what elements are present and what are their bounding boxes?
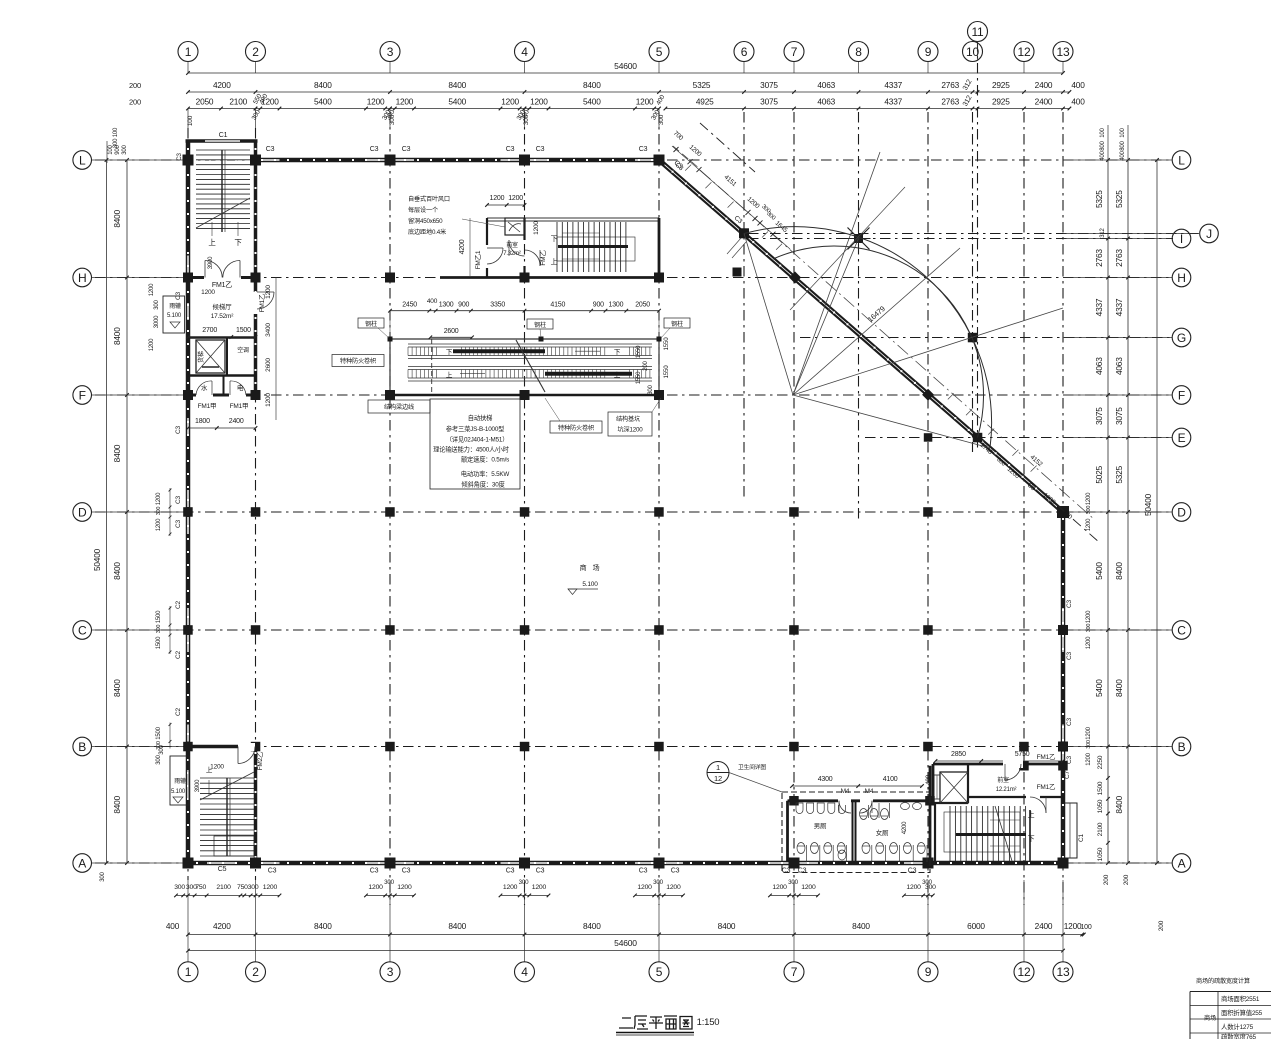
svg-text:5025: 5025 bbox=[1094, 465, 1104, 483]
svg-text:1:150: 1:150 bbox=[697, 1017, 720, 1028]
svg-text:50400: 50400 bbox=[92, 548, 102, 571]
svg-text:商场的疏散宽度计算: 商场的疏散宽度计算 bbox=[1196, 977, 1250, 985]
svg-text:电动功率：5.5KW: 电动功率：5.5KW bbox=[461, 469, 510, 478]
svg-text:1200: 1200 bbox=[637, 884, 652, 891]
svg-text:1800: 1800 bbox=[195, 418, 210, 425]
svg-text:C3: C3 bbox=[370, 868, 379, 875]
svg-text:5750: 5750 bbox=[1015, 751, 1030, 758]
svg-text:1300: 1300 bbox=[439, 302, 454, 309]
svg-text:C3: C3 bbox=[506, 146, 515, 153]
svg-text:1200: 1200 bbox=[367, 97, 385, 107]
svg-text:坑深1200: 坑深1200 bbox=[618, 426, 644, 434]
svg-text:6000: 6000 bbox=[967, 921, 985, 931]
svg-text:C3: C3 bbox=[639, 868, 648, 875]
svg-text:4337: 4337 bbox=[1094, 298, 1104, 316]
svg-text:C3: C3 bbox=[402, 868, 411, 875]
svg-text:C: C bbox=[78, 623, 87, 637]
svg-text:1550: 1550 bbox=[636, 371, 642, 384]
svg-text:C3: C3 bbox=[536, 868, 545, 875]
svg-text:A: A bbox=[78, 856, 86, 870]
svg-text:2850: 2850 bbox=[951, 751, 966, 758]
svg-text:300: 300 bbox=[523, 114, 530, 125]
svg-text:1200: 1200 bbox=[261, 97, 279, 107]
svg-text:200: 200 bbox=[129, 98, 141, 107]
svg-text:雨辘: 雨辘 bbox=[169, 302, 181, 310]
svg-text:12.21m²: 12.21m² bbox=[996, 787, 1017, 793]
svg-text:面积折算值255: 面积折算值255 bbox=[1221, 1008, 1263, 1017]
svg-text:8400: 8400 bbox=[112, 444, 122, 462]
svg-text:800: 800 bbox=[1120, 140, 1126, 150]
svg-text:FM1甲: FM1甲 bbox=[198, 402, 217, 410]
svg-text:2250: 2250 bbox=[1097, 755, 1104, 769]
svg-text:4925: 4925 bbox=[696, 97, 714, 107]
svg-text:12: 12 bbox=[1018, 45, 1031, 59]
svg-text:300: 300 bbox=[788, 879, 798, 886]
svg-text:F: F bbox=[1178, 388, 1185, 402]
svg-text:1550: 1550 bbox=[663, 365, 670, 379]
svg-text:3075: 3075 bbox=[760, 97, 778, 107]
svg-text:300: 300 bbox=[384, 879, 394, 886]
svg-text:下: 下 bbox=[551, 235, 558, 243]
svg-text:1200: 1200 bbox=[210, 764, 224, 771]
svg-text:300: 300 bbox=[389, 114, 396, 125]
svg-text:300: 300 bbox=[100, 871, 106, 881]
svg-text:1200: 1200 bbox=[201, 289, 215, 296]
svg-text:FM1乙: FM1乙 bbox=[212, 281, 232, 289]
svg-text:5400: 5400 bbox=[583, 97, 601, 107]
svg-text:1200: 1200 bbox=[490, 195, 505, 202]
svg-text:H: H bbox=[1177, 271, 1185, 285]
svg-text:5: 5 bbox=[656, 965, 663, 979]
svg-text:2050: 2050 bbox=[635, 302, 650, 309]
svg-text:1500: 1500 bbox=[236, 327, 251, 334]
svg-text:200: 200 bbox=[129, 81, 141, 90]
svg-text:300: 300 bbox=[922, 879, 932, 886]
svg-text:特种防火卷帜: 特种防火卷帜 bbox=[558, 424, 594, 432]
svg-text:C3: C3 bbox=[1066, 717, 1073, 725]
svg-text:2700: 2700 bbox=[202, 327, 217, 334]
svg-text:8400: 8400 bbox=[112, 679, 122, 697]
svg-text:5.100: 5.100 bbox=[582, 581, 598, 588]
svg-text:上: 上 bbox=[551, 257, 558, 266]
svg-text:1: 1 bbox=[185, 45, 192, 59]
svg-text:C2: C2 bbox=[175, 650, 182, 658]
svg-text:2: 2 bbox=[252, 45, 259, 59]
svg-text:13: 13 bbox=[1057, 45, 1070, 59]
svg-text:C5: C5 bbox=[218, 866, 227, 873]
svg-text:2100: 2100 bbox=[229, 97, 247, 107]
svg-text:8400: 8400 bbox=[1114, 679, 1124, 697]
svg-text:额定速度：0.5m/s: 额定速度：0.5m/s bbox=[461, 455, 509, 464]
svg-text:1200: 1200 bbox=[156, 492, 162, 505]
svg-text:C3: C3 bbox=[1066, 651, 1073, 659]
svg-text:8400: 8400 bbox=[583, 80, 601, 90]
svg-text:300: 300 bbox=[154, 299, 160, 309]
svg-text:2600: 2600 bbox=[265, 358, 272, 372]
svg-text:2400: 2400 bbox=[229, 418, 244, 425]
svg-text:商场: 商场 bbox=[1204, 1014, 1216, 1022]
svg-text:2400: 2400 bbox=[1035, 921, 1053, 931]
svg-text:FM乙1: FM乙1 bbox=[474, 250, 482, 269]
svg-text:3: 3 bbox=[387, 45, 394, 59]
svg-text:C3: C3 bbox=[639, 146, 648, 153]
svg-text:1200: 1200 bbox=[508, 195, 523, 202]
svg-text:300: 300 bbox=[658, 114, 665, 125]
svg-text:钢柱: 钢柱 bbox=[365, 320, 377, 328]
svg-text:300: 300 bbox=[156, 754, 162, 764]
svg-text:1200: 1200 bbox=[772, 884, 787, 891]
svg-text:54600: 54600 bbox=[614, 61, 637, 71]
svg-text:1200: 1200 bbox=[801, 884, 816, 891]
svg-text:12: 12 bbox=[714, 774, 722, 783]
svg-text:下: 下 bbox=[446, 348, 453, 356]
svg-text:M4: M4 bbox=[841, 788, 850, 795]
svg-text:2925: 2925 bbox=[992, 80, 1010, 90]
svg-text:2400: 2400 bbox=[1035, 80, 1053, 90]
svg-text:17.52m²: 17.52m² bbox=[211, 313, 234, 320]
svg-text:1200: 1200 bbox=[666, 884, 681, 891]
svg-text:13: 13 bbox=[1057, 965, 1070, 979]
svg-text:750: 750 bbox=[195, 884, 206, 891]
svg-text:1200: 1200 bbox=[532, 884, 547, 891]
svg-text:人数计1275: 人数计1275 bbox=[1221, 1022, 1254, 1031]
svg-text:C1: C1 bbox=[1078, 833, 1085, 841]
svg-text:C3: C3 bbox=[402, 146, 411, 153]
svg-text:女厕: 女厕 bbox=[876, 828, 889, 837]
svg-text:C3: C3 bbox=[370, 146, 379, 153]
svg-text:上: 上 bbox=[208, 238, 216, 247]
svg-text:3075: 3075 bbox=[760, 80, 778, 90]
svg-text:特种防火卷帜: 特种防火卷帜 bbox=[340, 357, 376, 365]
svg-text:900: 900 bbox=[593, 302, 604, 309]
svg-text:300: 300 bbox=[159, 744, 165, 754]
svg-text:4200: 4200 bbox=[213, 921, 231, 931]
svg-text:1500: 1500 bbox=[1097, 781, 1104, 795]
svg-text:8400: 8400 bbox=[112, 209, 122, 227]
svg-text:8400: 8400 bbox=[112, 795, 122, 813]
svg-text:1200: 1200 bbox=[263, 884, 278, 891]
svg-text:8400: 8400 bbox=[314, 921, 332, 931]
svg-text:1200: 1200 bbox=[906, 884, 921, 891]
svg-text:M4: M4 bbox=[865, 788, 874, 795]
svg-text:C1: C1 bbox=[219, 132, 228, 139]
svg-text:下: 下 bbox=[234, 238, 242, 247]
svg-text:场: 场 bbox=[593, 563, 600, 572]
svg-text:A: A bbox=[1178, 856, 1186, 870]
svg-text:C: C bbox=[1177, 623, 1186, 637]
svg-text:3400: 3400 bbox=[265, 323, 272, 337]
svg-text:100: 100 bbox=[1080, 924, 1091, 931]
svg-text:H: H bbox=[78, 271, 86, 285]
svg-text:8400: 8400 bbox=[314, 80, 332, 90]
svg-text:上: 上 bbox=[206, 765, 213, 774]
svg-text:1200: 1200 bbox=[1086, 636, 1092, 649]
svg-text:312: 312 bbox=[1100, 227, 1106, 237]
svg-text:900: 900 bbox=[458, 302, 469, 309]
svg-text:FM1乙: FM1乙 bbox=[1037, 783, 1056, 791]
svg-text:7: 7 bbox=[791, 45, 798, 59]
svg-text:1050: 1050 bbox=[1097, 847, 1104, 861]
svg-text:3075: 3075 bbox=[1094, 407, 1104, 425]
svg-text:留洞450x650: 留洞450x650 bbox=[408, 217, 443, 225]
svg-text:C3: C3 bbox=[536, 146, 545, 153]
svg-text:100: 100 bbox=[1100, 127, 1106, 137]
svg-text:9: 9 bbox=[925, 45, 932, 59]
svg-text:货梯: 货梯 bbox=[197, 351, 205, 363]
svg-text:4337: 4337 bbox=[884, 80, 902, 90]
svg-text:8400: 8400 bbox=[852, 921, 870, 931]
svg-text:FM1甲: FM1甲 bbox=[230, 402, 249, 410]
svg-text:1200: 1200 bbox=[1086, 752, 1092, 765]
svg-text:5325: 5325 bbox=[1094, 190, 1104, 208]
svg-text:2050: 2050 bbox=[196, 97, 214, 107]
svg-text:4150: 4150 bbox=[550, 302, 565, 309]
svg-text:4337: 4337 bbox=[1114, 298, 1124, 316]
svg-text:1200: 1200 bbox=[265, 285, 272, 299]
svg-text:1200: 1200 bbox=[156, 518, 162, 531]
svg-text:4063: 4063 bbox=[1114, 357, 1124, 375]
svg-text:结构基坑: 结构基坑 bbox=[616, 415, 640, 423]
svg-text:1200: 1200 bbox=[636, 97, 654, 107]
svg-text:1200: 1200 bbox=[397, 884, 412, 891]
svg-text:自垂式百叶风口: 自垂式百叶风口 bbox=[408, 195, 450, 203]
svg-text:理论输送能力：4500人/小时: 理论输送能力：4500人/小时 bbox=[433, 445, 510, 454]
svg-text:11: 11 bbox=[971, 25, 984, 39]
svg-text:4: 4 bbox=[521, 45, 528, 59]
svg-text:F: F bbox=[79, 388, 86, 402]
svg-text:1: 1 bbox=[185, 965, 192, 979]
svg-text:雨辘: 雨辘 bbox=[174, 777, 186, 785]
svg-text:2763: 2763 bbox=[941, 80, 959, 90]
svg-text:1200: 1200 bbox=[530, 97, 548, 107]
svg-text:1200: 1200 bbox=[1086, 492, 1092, 505]
svg-text:2450: 2450 bbox=[402, 302, 417, 309]
svg-text:5400: 5400 bbox=[448, 97, 466, 107]
svg-text:C3: C3 bbox=[266, 146, 275, 153]
svg-text:3000: 3000 bbox=[154, 315, 160, 328]
svg-text:1500: 1500 bbox=[156, 636, 162, 649]
svg-text:FM1乙: FM1乙 bbox=[1037, 753, 1056, 761]
svg-text:B: B bbox=[1178, 740, 1186, 754]
svg-text:4200: 4200 bbox=[213, 80, 231, 90]
svg-text:4300: 4300 bbox=[818, 776, 833, 783]
svg-text:5.100: 5.100 bbox=[167, 313, 182, 319]
svg-text:2100: 2100 bbox=[1097, 822, 1104, 836]
svg-text:1200: 1200 bbox=[1064, 921, 1082, 931]
svg-text:800: 800 bbox=[1100, 140, 1106, 150]
svg-text:D: D bbox=[78, 505, 87, 519]
svg-text:1200: 1200 bbox=[368, 884, 383, 891]
svg-text:钢柱: 钢柱 bbox=[534, 321, 546, 329]
svg-text:C3: C3 bbox=[782, 868, 791, 875]
svg-text:2600: 2600 bbox=[444, 328, 459, 335]
svg-text:上: 上 bbox=[1028, 810, 1035, 819]
svg-text:C2: C2 bbox=[175, 707, 182, 715]
svg-text:3075: 3075 bbox=[1114, 407, 1124, 425]
svg-text:300: 300 bbox=[156, 507, 162, 516]
svg-text:自动扶梯: 自动扶梯 bbox=[468, 413, 492, 422]
svg-text:8400: 8400 bbox=[1114, 562, 1124, 580]
svg-text:2763: 2763 bbox=[1114, 249, 1124, 267]
svg-text:400: 400 bbox=[1071, 80, 1085, 90]
svg-text:4063: 4063 bbox=[1094, 357, 1104, 375]
svg-text:8400: 8400 bbox=[448, 921, 466, 931]
svg-text:3900: 3900 bbox=[208, 256, 214, 269]
svg-text:300: 300 bbox=[174, 884, 185, 891]
svg-text:1550: 1550 bbox=[663, 337, 670, 351]
svg-text:C3: C3 bbox=[1066, 599, 1073, 607]
svg-text:候梯厅: 候梯厅 bbox=[213, 302, 233, 311]
svg-text:400: 400 bbox=[1071, 97, 1085, 107]
svg-text:3900: 3900 bbox=[195, 779, 201, 792]
svg-text:7.32m²: 7.32m² bbox=[503, 251, 521, 257]
svg-text:C2: C2 bbox=[175, 600, 182, 608]
svg-text:2100: 2100 bbox=[216, 884, 231, 891]
svg-text:4100: 4100 bbox=[883, 776, 898, 783]
svg-text:4063: 4063 bbox=[817, 80, 835, 90]
svg-text:空调: 空调 bbox=[237, 346, 249, 354]
svg-text:8400: 8400 bbox=[718, 921, 736, 931]
svg-text:400: 400 bbox=[1100, 150, 1106, 160]
svg-text:1200: 1200 bbox=[503, 884, 518, 891]
svg-text:5400: 5400 bbox=[314, 97, 332, 107]
svg-text:1200: 1200 bbox=[396, 97, 414, 107]
svg-text:400: 400 bbox=[1120, 150, 1126, 160]
svg-text:J: J bbox=[1206, 227, 1212, 241]
svg-text:结构梁边线: 结构梁边线 bbox=[384, 403, 414, 411]
svg-text:5400: 5400 bbox=[1094, 679, 1104, 697]
svg-text:5325: 5325 bbox=[693, 80, 711, 90]
svg-text:参考三菜JS-B-1000型: 参考三菜JS-B-1000型 bbox=[446, 424, 504, 433]
svg-text:300: 300 bbox=[1086, 740, 1092, 749]
svg-text:1050: 1050 bbox=[1097, 799, 1104, 813]
svg-text:1300: 1300 bbox=[609, 302, 624, 309]
svg-text:商场面积2551: 商场面积2551 bbox=[1221, 994, 1260, 1003]
svg-text:C3: C3 bbox=[671, 868, 680, 875]
svg-text:54600: 54600 bbox=[614, 938, 637, 948]
svg-text:3: 3 bbox=[387, 965, 394, 979]
svg-text:9: 9 bbox=[925, 965, 932, 979]
svg-text:C3: C3 bbox=[908, 868, 917, 875]
svg-text:上: 上 bbox=[614, 370, 621, 379]
svg-text:4200: 4200 bbox=[459, 239, 466, 254]
svg-text:300: 300 bbox=[122, 144, 128, 154]
svg-text:3350: 3350 bbox=[490, 302, 505, 309]
svg-text:100: 100 bbox=[187, 115, 194, 126]
svg-text:1200: 1200 bbox=[1086, 518, 1092, 531]
svg-text:前室: 前室 bbox=[506, 241, 518, 249]
svg-text:C3: C3 bbox=[506, 868, 515, 875]
svg-text:上: 上 bbox=[446, 370, 453, 379]
svg-text:300: 300 bbox=[1086, 624, 1092, 633]
svg-text:6: 6 bbox=[741, 45, 748, 59]
svg-text:1: 1 bbox=[716, 763, 720, 772]
svg-text:D: D bbox=[1177, 505, 1186, 519]
svg-text:C3: C3 bbox=[175, 495, 182, 503]
svg-text:C3: C3 bbox=[268, 868, 277, 875]
svg-text:C7: C7 bbox=[1064, 770, 1071, 778]
svg-text:200: 200 bbox=[643, 360, 649, 370]
svg-text:300: 300 bbox=[156, 625, 162, 634]
svg-text:12: 12 bbox=[1018, 965, 1031, 979]
svg-text:300 100: 300 100 bbox=[113, 127, 119, 148]
svg-text:商: 商 bbox=[580, 563, 587, 572]
svg-text:1500: 1500 bbox=[156, 610, 162, 623]
svg-text:下: 下 bbox=[614, 348, 621, 356]
svg-text:2763: 2763 bbox=[1094, 249, 1104, 267]
svg-text:8: 8 bbox=[855, 45, 862, 59]
svg-text:1200: 1200 bbox=[149, 283, 155, 296]
svg-text:每层设一个: 每层设一个 bbox=[408, 206, 438, 214]
svg-text:8400: 8400 bbox=[112, 327, 122, 345]
svg-text:8400: 8400 bbox=[112, 562, 122, 580]
svg-text:50400: 50400 bbox=[1143, 493, 1153, 516]
svg-text:300: 300 bbox=[248, 884, 259, 891]
svg-text:C3: C3 bbox=[175, 519, 182, 527]
svg-text:2400: 2400 bbox=[1035, 97, 1053, 107]
svg-text:5325: 5325 bbox=[1114, 465, 1124, 483]
svg-text:钢柱: 钢柱 bbox=[671, 320, 683, 328]
svg-text:2: 2 bbox=[252, 965, 259, 979]
svg-text:下: 下 bbox=[1028, 835, 1035, 843]
svg-text:（详见02J404-1-M51）: （详见02J404-1-M51） bbox=[446, 435, 509, 444]
svg-text:400: 400 bbox=[166, 921, 180, 931]
svg-text:底边距地0.4米: 底边距地0.4米 bbox=[408, 228, 446, 236]
svg-text:8400: 8400 bbox=[448, 80, 466, 90]
svg-text:L: L bbox=[1178, 153, 1185, 167]
svg-text:I: I bbox=[1180, 232, 1183, 246]
svg-text:1200: 1200 bbox=[149, 338, 155, 351]
svg-text:4337: 4337 bbox=[884, 97, 902, 107]
svg-text:C3: C3 bbox=[176, 152, 183, 160]
svg-text:卫生间详图: 卫生间详图 bbox=[738, 763, 766, 771]
svg-text:1500: 1500 bbox=[156, 726, 162, 739]
svg-text:4200: 4200 bbox=[902, 821, 908, 834]
svg-text:5.100: 5.100 bbox=[171, 789, 186, 795]
svg-text:C3: C3 bbox=[175, 425, 182, 433]
svg-text:2763: 2763 bbox=[941, 97, 959, 107]
svg-text:400: 400 bbox=[925, 774, 932, 784]
svg-text:400: 400 bbox=[427, 298, 438, 305]
svg-text:2925: 2925 bbox=[992, 97, 1010, 107]
svg-text:200: 200 bbox=[1123, 874, 1130, 885]
svg-text:300: 300 bbox=[648, 384, 654, 394]
svg-text:4: 4 bbox=[521, 965, 528, 979]
svg-text:E: E bbox=[1178, 431, 1186, 445]
svg-text:疏散宽度765: 疏散宽度765 bbox=[1221, 1032, 1256, 1039]
svg-text:300: 300 bbox=[519, 879, 529, 886]
svg-text:8400: 8400 bbox=[583, 921, 601, 931]
svg-text:男厕: 男厕 bbox=[814, 822, 827, 830]
svg-text:100: 100 bbox=[1120, 127, 1126, 137]
svg-text:1200: 1200 bbox=[1086, 610, 1092, 623]
svg-text:5400: 5400 bbox=[1094, 562, 1104, 580]
svg-text:倾斜角度：30度: 倾斜角度：30度 bbox=[461, 480, 505, 489]
svg-text:750: 750 bbox=[237, 884, 248, 891]
svg-text:5: 5 bbox=[656, 45, 663, 59]
svg-text:4063: 4063 bbox=[817, 97, 835, 107]
svg-text:1200: 1200 bbox=[501, 97, 519, 107]
svg-text:200: 200 bbox=[1103, 874, 1110, 885]
svg-text:1200: 1200 bbox=[1086, 726, 1092, 739]
svg-text:1200: 1200 bbox=[533, 221, 540, 235]
svg-text:7: 7 bbox=[791, 965, 798, 979]
svg-text:300: 300 bbox=[653, 879, 663, 886]
svg-text:L: L bbox=[79, 153, 86, 167]
svg-text:8400: 8400 bbox=[1114, 795, 1124, 813]
svg-text:C3: C3 bbox=[798, 868, 807, 875]
svg-text:200: 200 bbox=[1158, 920, 1165, 931]
